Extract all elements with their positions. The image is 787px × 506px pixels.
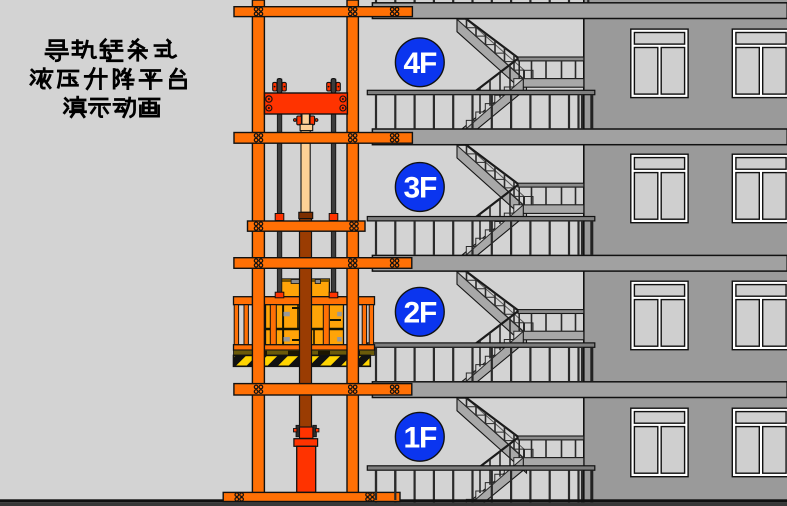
svg-text:3F: 3F <box>403 172 436 205</box>
svg-text:2F: 2F <box>403 297 436 330</box>
svg-text:1F: 1F <box>403 422 436 455</box>
svg-text:4F: 4F <box>403 47 436 80</box>
